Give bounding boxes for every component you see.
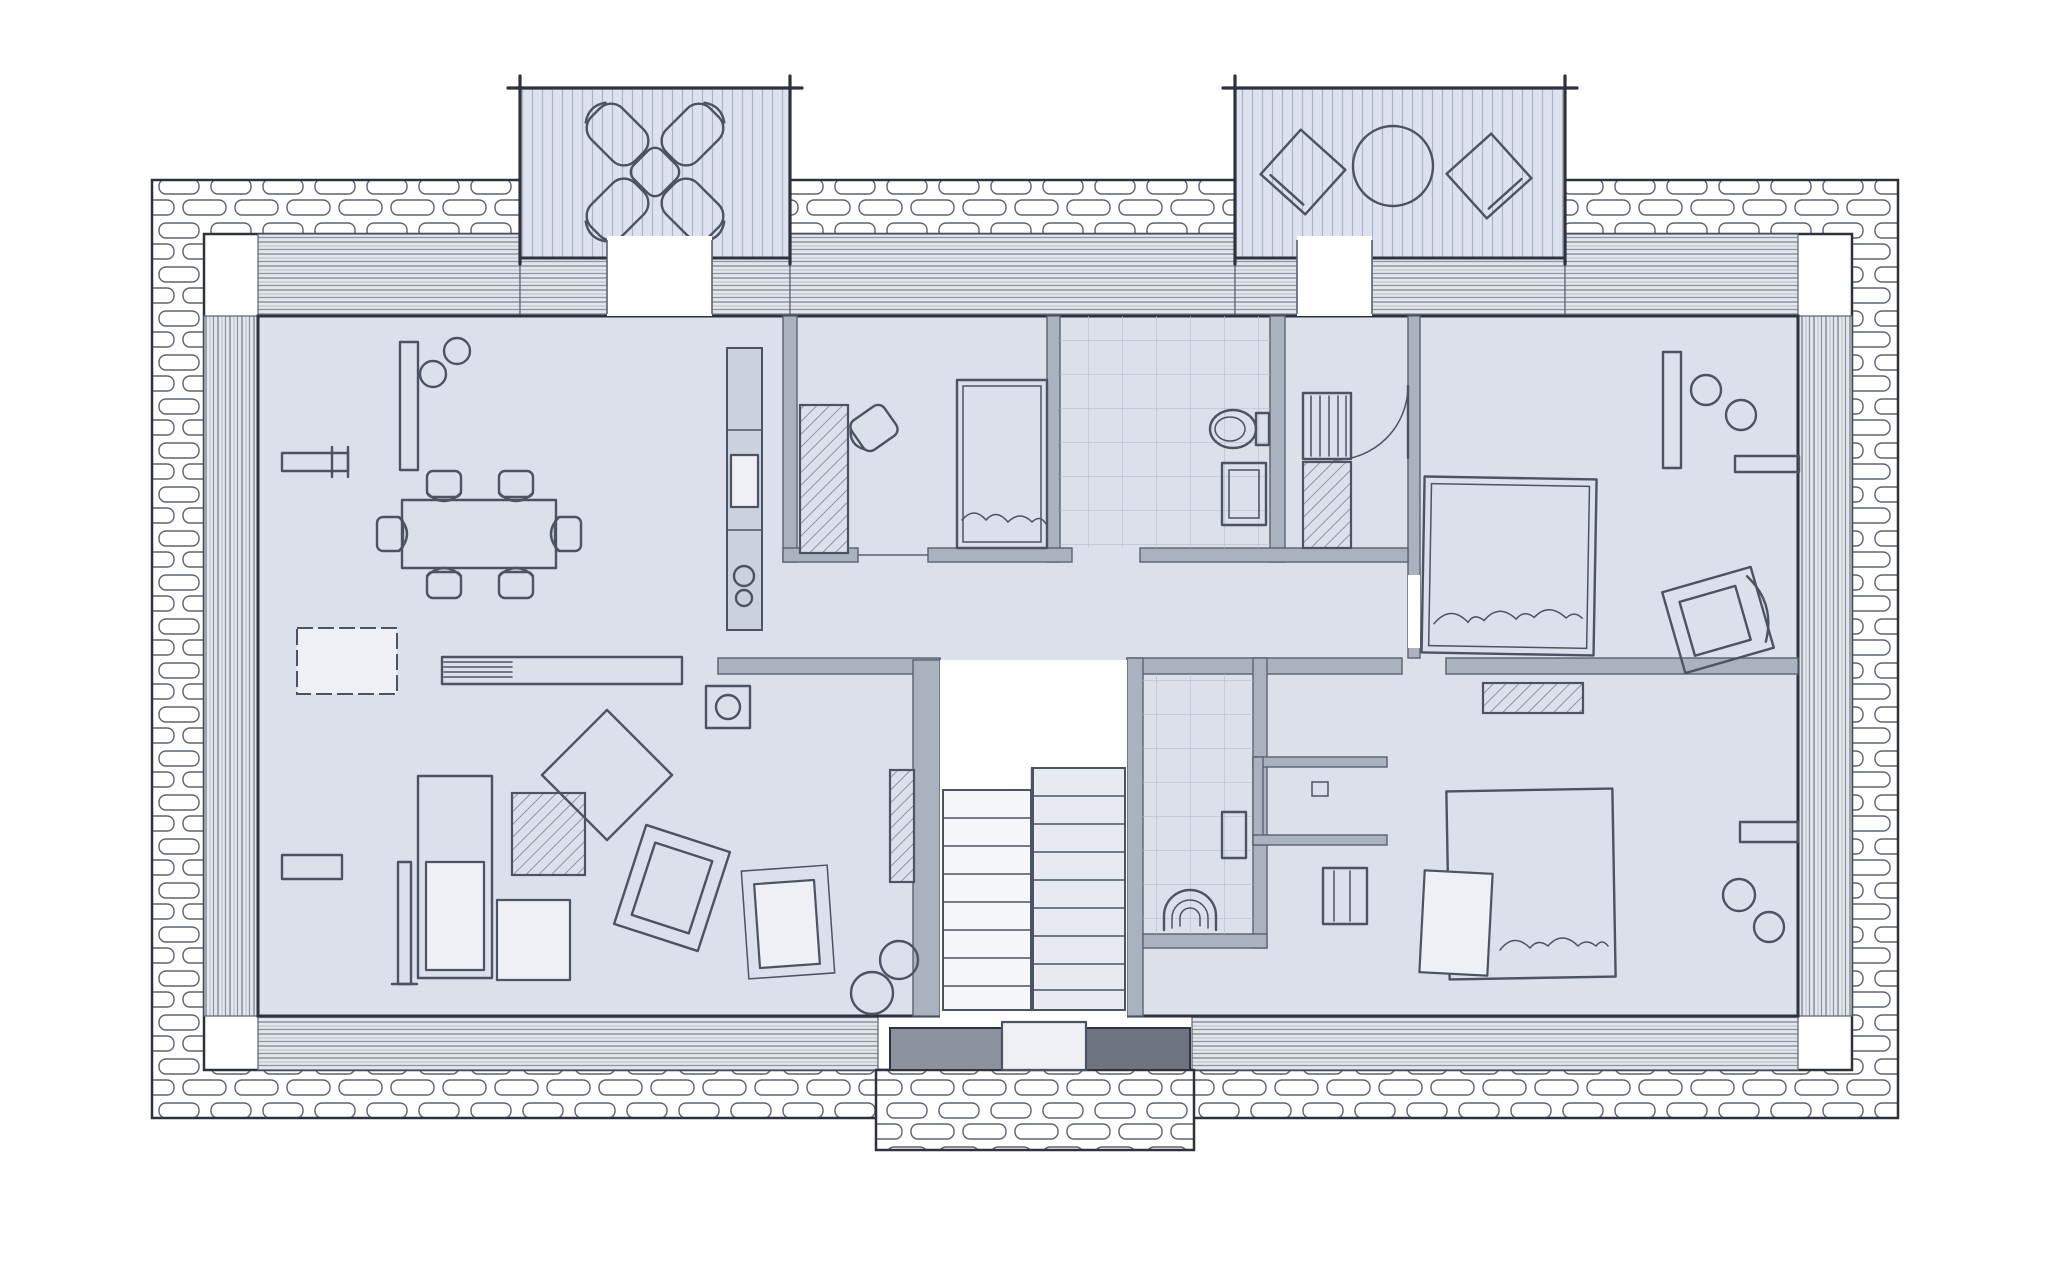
window-band-left xyxy=(204,316,258,1016)
balcony-left-door-opening xyxy=(607,236,712,316)
wall-corridor-south-left xyxy=(718,658,940,674)
wall-corridor-north-c xyxy=(1140,548,1408,562)
wall-wc-south xyxy=(1143,934,1267,948)
wall-corridor-north-b xyxy=(928,548,1072,562)
coffee-table-hatched xyxy=(512,793,585,875)
balcony-right-door-opening xyxy=(1297,236,1372,316)
stair-flight-right xyxy=(1033,768,1125,1010)
kitchen-sink xyxy=(731,455,758,507)
wc-tiles xyxy=(1143,674,1253,934)
porch-step-left xyxy=(890,1028,1002,1070)
porch-door-mat xyxy=(1002,1022,1086,1070)
wall-bath-closet xyxy=(1270,316,1285,562)
window-band-right xyxy=(1798,316,1852,1016)
wall-guestroom-bath xyxy=(1047,316,1060,562)
stair-flight-left xyxy=(943,790,1031,1010)
porch-step-right xyxy=(1086,1028,1190,1070)
window-band-bottom-right xyxy=(1192,1016,1798,1070)
bedside-rug-hatched xyxy=(1483,683,1583,713)
balcony-left-deck xyxy=(520,88,790,258)
stairwell xyxy=(940,660,1127,1072)
window-band-top-mid xyxy=(790,234,1235,316)
bathroom xyxy=(1060,316,1270,548)
wall-stair-east xyxy=(1127,658,1143,1016)
wall-living-guestroom xyxy=(783,316,797,562)
kitchen-counter xyxy=(727,348,762,630)
desk-hatched xyxy=(800,405,848,553)
bedroom2-door-opening xyxy=(1408,575,1420,648)
window-band-top-left xyxy=(258,234,520,316)
wc-shower xyxy=(1143,674,1253,934)
wall-corridor-south-far xyxy=(1446,658,1798,674)
window-band-top-right xyxy=(1565,234,1798,316)
bathroom-tiles xyxy=(1060,316,1270,548)
balcony-right-deck xyxy=(1235,88,1565,258)
white-rug xyxy=(297,628,397,694)
square-seat xyxy=(497,900,570,980)
entrance-porch xyxy=(876,1016,1194,1150)
bed-pillow xyxy=(1419,870,1492,975)
window-band-bottom-left xyxy=(258,1016,878,1070)
closet-hatched-shelf xyxy=(1303,462,1351,548)
porch-stone-apron xyxy=(876,1070,1194,1150)
floor-plan-canvas xyxy=(0,0,2047,1280)
floor-plan-page xyxy=(0,0,2047,1280)
media-niche xyxy=(890,770,914,882)
